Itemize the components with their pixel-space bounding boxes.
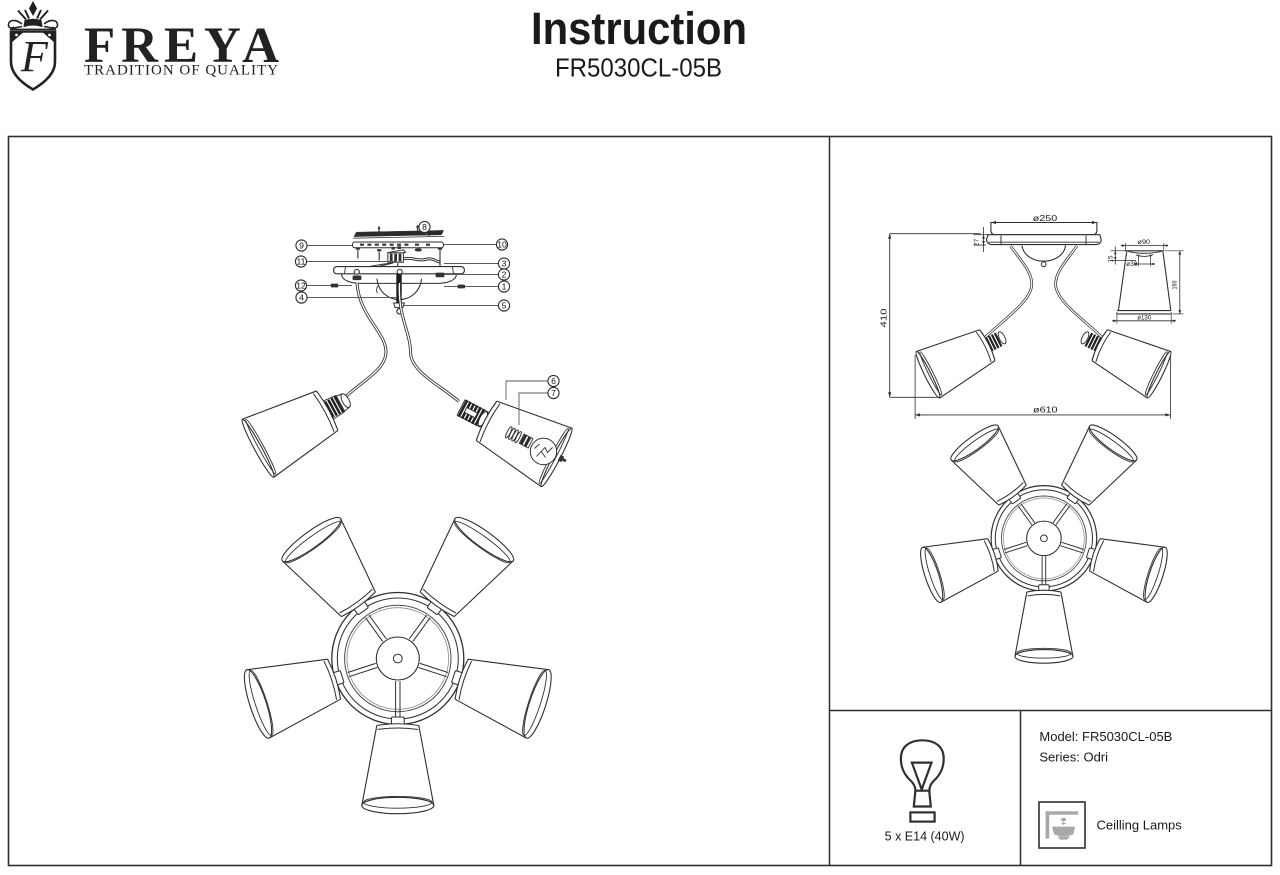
svg-text:11: 11 (297, 257, 306, 267)
svg-text:FR5030CL-05B: FR5030CL-05B (555, 55, 722, 83)
svg-text:Ceilling Lamps: Ceilling Lamps (1097, 818, 1183, 833)
svg-text:5 x E14 (40W): 5 x E14 (40W) (885, 830, 965, 844)
svg-text:15: 15 (1107, 255, 1114, 262)
svg-text:TRADITION OF QUALITY: TRADITION OF QUALITY (84, 63, 279, 79)
svg-text:160: 160 (1172, 280, 1179, 289)
svg-text:10: 10 (497, 240, 507, 250)
svg-text:Series: Odri: Series: Odri (1039, 749, 1108, 764)
svg-text:Instruction: Instruction (531, 3, 747, 54)
svg-text:12: 12 (296, 281, 306, 291)
svg-text:6: 6 (551, 376, 556, 386)
svg-text:ø90: ø90 (1138, 239, 1151, 246)
svg-text:F: F (20, 32, 49, 81)
svg-text:5: 5 (502, 301, 507, 311)
svg-text:1: 1 (502, 282, 507, 292)
svg-text:27: 27 (973, 238, 980, 246)
svg-text:3: 3 (502, 259, 507, 269)
svg-text:410: 410 (878, 308, 888, 327)
svg-text:ø610: ø610 (1033, 406, 1058, 415)
svg-text:4: 4 (299, 293, 304, 303)
svg-text:ø250: ø250 (1033, 214, 1058, 223)
svg-text:2: 2 (502, 270, 507, 280)
svg-text:Model: FR5030CL-05B: Model: FR5030CL-05B (1039, 729, 1172, 744)
svg-text:8: 8 (422, 222, 427, 232)
svg-text:7: 7 (551, 388, 556, 398)
svg-text:9: 9 (299, 241, 304, 251)
svg-text:ø130: ø130 (1137, 314, 1151, 321)
svg-text:ø30: ø30 (1126, 261, 1137, 268)
